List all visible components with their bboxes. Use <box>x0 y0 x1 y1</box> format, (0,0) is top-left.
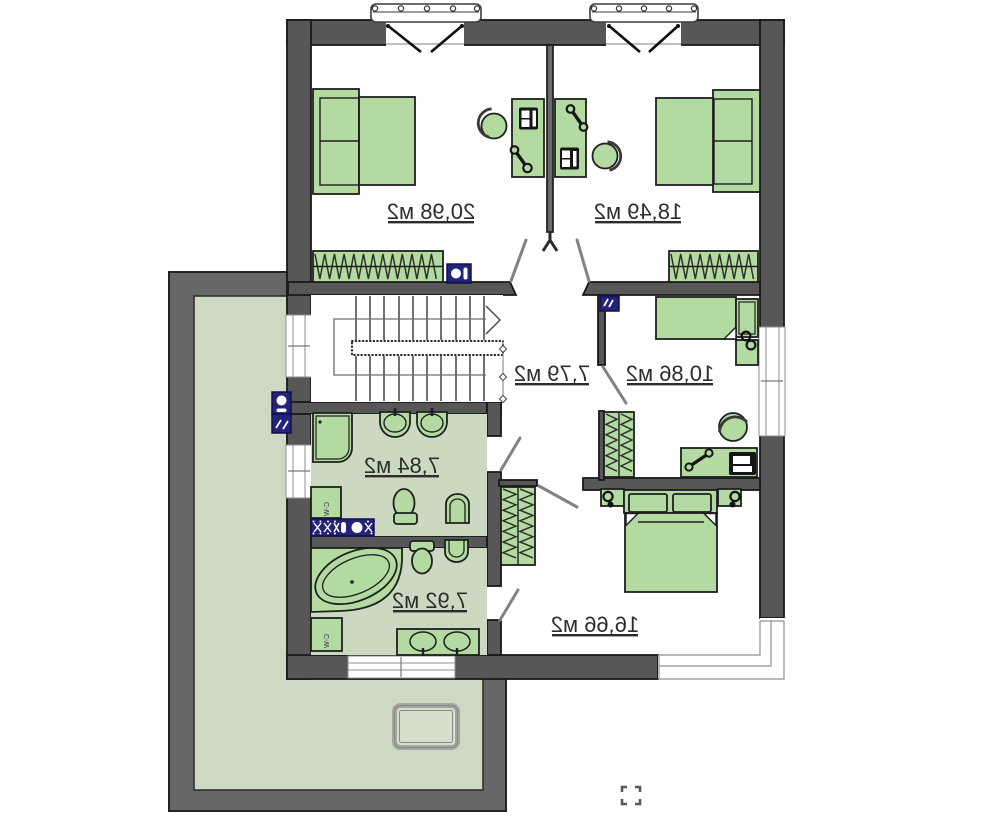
svg-text:20,98 м2: 20,98 м2 <box>387 199 476 224</box>
svg-text:18,49 м2: 18,49 м2 <box>594 199 683 224</box>
svg-text:7,92 м2: 7,92 м2 <box>392 588 468 613</box>
svg-text:10,86 м2: 10,86 м2 <box>626 361 715 386</box>
svg-text:7,84 м2: 7,84 м2 <box>364 453 440 478</box>
svg-text:7,79 м2: 7,79 м2 <box>514 361 590 386</box>
svg-text:C-W: C-W <box>324 634 331 648</box>
svg-text:16,66 м2: 16,66 м2 <box>551 612 640 637</box>
svg-text:C-W: C-W <box>324 502 331 516</box>
